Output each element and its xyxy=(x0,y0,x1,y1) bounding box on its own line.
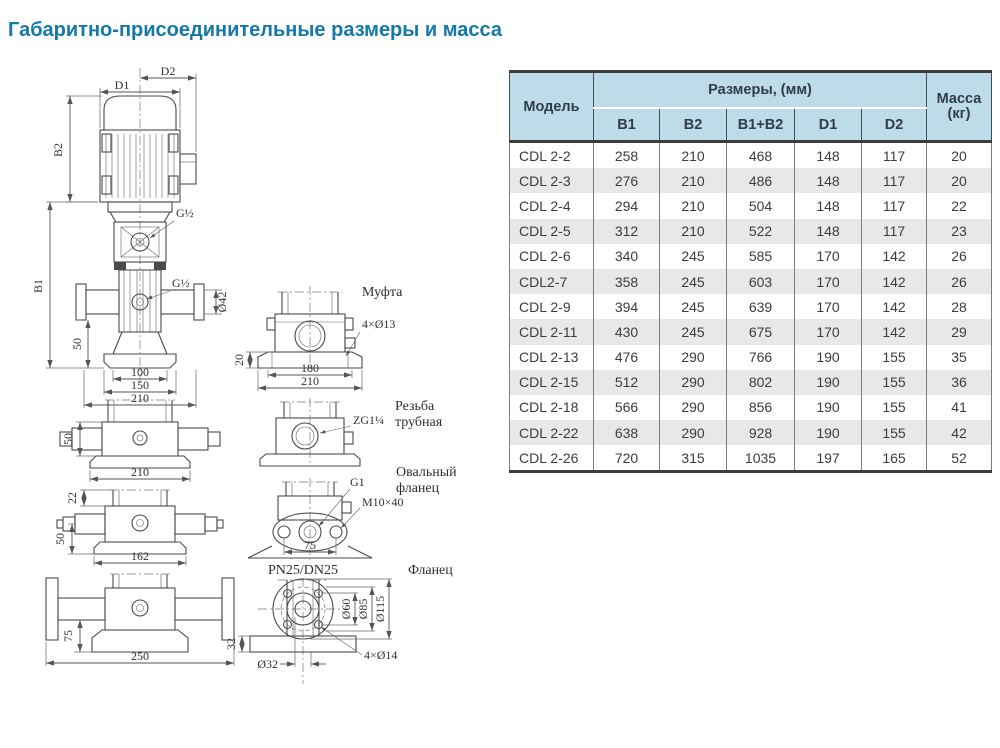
b2-cell: 210 xyxy=(660,142,727,169)
d2-cell: 165 xyxy=(862,445,927,472)
model-cell: CDL 2-3 xyxy=(510,168,594,193)
mass-cell: 23 xyxy=(927,219,992,244)
model-cell: CDL 2-22 xyxy=(510,420,594,445)
callout-zg114: ZG1¼ xyxy=(353,413,384,427)
b2-cell: 290 xyxy=(660,395,727,420)
callout-pn25-dn25: PN25/DN25 xyxy=(268,563,338,578)
dim-label-b1: B1 xyxy=(31,279,45,293)
d1-cell: 148 xyxy=(795,219,862,244)
d1-cell: 170 xyxy=(795,319,862,344)
table-row: CDL 2-327621048614811720 xyxy=(510,168,992,193)
pump-technical-drawing: D2 D1 B2 B1 G½ G½ 50 Ø42 100 150 xyxy=(10,66,500,726)
column-header-d2: D2 xyxy=(862,108,927,142)
column-header-b1: B1 xyxy=(594,108,660,142)
b2-cell: 210 xyxy=(660,219,727,244)
model-cell: CDL 2-6 xyxy=(510,244,594,269)
table-row: CDL 2-939424563917014228 xyxy=(510,294,992,319)
dim-label-50: 50 xyxy=(70,338,84,350)
callout-4xd14: 4×Ø14 xyxy=(364,648,397,662)
mass-cell: 26 xyxy=(927,244,992,269)
b1b2-cell: 468 xyxy=(727,142,795,169)
d1-cell: 170 xyxy=(795,294,862,319)
technical-drawing-area: D2 D1 B2 B1 G½ G½ 50 Ø42 100 150 xyxy=(10,66,500,731)
view-label-oval-1: Овальный xyxy=(396,465,457,480)
b1-cell: 566 xyxy=(594,395,660,420)
column-header-model: Модель xyxy=(510,72,594,142)
d2-cell: 117 xyxy=(862,142,927,169)
b2-cell: 210 xyxy=(660,168,727,193)
callout-g-half-top: G½ xyxy=(176,206,194,220)
dim-label-dia85: Ø85 xyxy=(356,599,370,620)
table-row: CDL 2-429421050414811722 xyxy=(510,193,992,218)
model-cell: CDL 2-15 xyxy=(510,370,594,395)
mass-header-line2: (кг) xyxy=(927,107,991,122)
model-cell: CDL 2-9 xyxy=(510,294,594,319)
d1-cell: 190 xyxy=(795,395,862,420)
callout-4xd13: 4×Ø13 xyxy=(362,317,395,331)
b1b2-cell: 802 xyxy=(727,370,795,395)
table-row: CDL 2-26720315103519716552 xyxy=(510,445,992,472)
table-row: CDL2-735824560317014226 xyxy=(510,269,992,294)
view-mufta: Муфта 4×Ø13 20 180 210 xyxy=(232,285,403,391)
dim-label-d1: D1 xyxy=(115,78,130,92)
table-row: CDL 2-1856629085619015541 xyxy=(510,395,992,420)
mass-cell: 26 xyxy=(927,269,992,294)
b2-cell: 245 xyxy=(660,319,727,344)
dim-label-75: 75 xyxy=(304,538,316,552)
b1b2-cell: 504 xyxy=(727,193,795,218)
d2-cell: 155 xyxy=(862,370,927,395)
b2-cell: 290 xyxy=(660,345,727,370)
dim-label-20: 20 xyxy=(232,354,246,366)
b2-cell: 210 xyxy=(660,193,727,218)
b1-cell: 276 xyxy=(594,168,660,193)
view-label-mufta: Муфта xyxy=(362,285,403,300)
b1b2-cell: 766 xyxy=(727,345,795,370)
side-view-coupling: 50 210 xyxy=(60,400,220,482)
d2-cell: 117 xyxy=(862,168,927,193)
view-label-rezba-2: трубная xyxy=(395,415,443,430)
dim-label-210: 210 xyxy=(131,465,149,479)
d2-cell: 155 xyxy=(862,420,927,445)
dim-label-50: 50 xyxy=(53,533,67,545)
mass-cell: 29 xyxy=(927,319,992,344)
dim-label-50: 50 xyxy=(61,433,75,445)
b1-cell: 638 xyxy=(594,420,660,445)
b2-cell: 315 xyxy=(660,445,727,472)
b1-cell: 512 xyxy=(594,370,660,395)
table-row: CDL 2-531221052214811723 xyxy=(510,219,992,244)
dim-label-dia42: Ø42 xyxy=(215,292,229,313)
b1-cell: 312 xyxy=(594,219,660,244)
table-row: CDL 2-634024558517014226 xyxy=(510,244,992,269)
b1b2-cell: 639 xyxy=(727,294,795,319)
table-header: Модель Размеры, (мм) Масса (кг) B1 B2 B1… xyxy=(510,72,992,142)
d1-cell: 190 xyxy=(795,345,862,370)
view-label-rezba-1: Резьба xyxy=(395,399,435,414)
callout-m10x40: M10×40 xyxy=(362,495,403,509)
d1-cell: 148 xyxy=(795,168,862,193)
column-header-b2: B2 xyxy=(660,108,727,142)
b1b2-cell: 486 xyxy=(727,168,795,193)
dim-label-dia115: Ø115 xyxy=(373,596,387,622)
b1b2-cell: 522 xyxy=(727,219,795,244)
dim-label-dia32: Ø32 xyxy=(257,657,278,671)
column-header-b1b2: B1+B2 xyxy=(727,108,795,142)
column-group-sizes: Размеры, (мм) xyxy=(594,72,927,109)
side-view-flanged: 75 250 xyxy=(46,574,234,666)
dim-label-d2: D2 xyxy=(161,66,176,78)
d2-cell: 117 xyxy=(862,193,927,218)
column-header-d1: D1 xyxy=(795,108,862,142)
d2-cell: 155 xyxy=(862,345,927,370)
page-title: Габаритно-присоединительные размеры и ма… xyxy=(8,18,502,42)
side-view-thread: 22 50 162 xyxy=(53,490,223,566)
model-cell: CDL 2-4 xyxy=(510,193,594,218)
b1b2-cell: 856 xyxy=(727,395,795,420)
d2-cell: 117 xyxy=(862,219,927,244)
b1-cell: 476 xyxy=(594,345,660,370)
mass-cell: 36 xyxy=(927,370,992,395)
dim-label-210: 210 xyxy=(131,391,149,405)
view-label-oval-2: фланец xyxy=(396,481,440,496)
callout-g-half-mid: G½ xyxy=(172,276,190,290)
d2-cell: 142 xyxy=(862,319,927,344)
spec-table-container: Модель Размеры, (мм) Масса (кг) B1 B2 B1… xyxy=(509,70,991,473)
model-cell: CDL2-7 xyxy=(510,269,594,294)
mass-header-line1: Масса xyxy=(927,92,991,107)
b1-cell: 720 xyxy=(594,445,660,472)
b1-cell: 430 xyxy=(594,319,660,344)
b2-cell: 245 xyxy=(660,269,727,294)
model-cell: CDL 2-11 xyxy=(510,319,594,344)
view-label-flange: Фланец xyxy=(408,563,453,578)
model-cell: CDL 2-2 xyxy=(510,142,594,169)
table-body: CDL 2-225821046814811720CDL 2-3276210486… xyxy=(510,142,992,472)
d1-cell: 197 xyxy=(795,445,862,472)
dim-label-100: 100 xyxy=(131,365,149,379)
dim-label-75: 75 xyxy=(61,630,75,642)
table-row: CDL 2-1347629076619015535 xyxy=(510,345,992,370)
mass-cell: 52 xyxy=(927,445,992,472)
view-rezba: ZG1¼ Резьба трубная xyxy=(260,398,443,466)
b1b2-cell: 585 xyxy=(727,244,795,269)
d2-cell: 142 xyxy=(862,269,927,294)
d1-cell: 190 xyxy=(795,420,862,445)
b1b2-cell: 675 xyxy=(727,319,795,344)
dim-label-210: 210 xyxy=(301,374,319,388)
table-row: CDL 2-2263829092819015542 xyxy=(510,420,992,445)
b1-cell: 340 xyxy=(594,244,660,269)
mass-cell: 20 xyxy=(927,168,992,193)
dim-label-b2: B2 xyxy=(51,143,65,157)
d1-cell: 190 xyxy=(795,370,862,395)
b1b2-cell: 603 xyxy=(727,269,795,294)
table-row: CDL 2-225821046814811720 xyxy=(510,142,992,169)
table-row: CDL 2-1551229080219015536 xyxy=(510,370,992,395)
model-cell: CDL 2-5 xyxy=(510,219,594,244)
b1-cell: 394 xyxy=(594,294,660,319)
mass-cell: 28 xyxy=(927,294,992,319)
view-round-flange: PN25/DN25 Фланец Ø60 Ø85 Ø115 32 Ø32 xyxy=(224,563,453,684)
dim-label-dia60: Ø60 xyxy=(339,599,353,620)
table-row: CDL 2-1143024567517014229 xyxy=(510,319,992,344)
d2-cell: 142 xyxy=(862,294,927,319)
d2-cell: 155 xyxy=(862,395,927,420)
b2-cell: 245 xyxy=(660,244,727,269)
dim-label-250: 250 xyxy=(131,649,149,663)
view-oval-flange: G1 M10×40 Овальный фланец 75 xyxy=(248,465,457,562)
b1-cell: 358 xyxy=(594,269,660,294)
d2-cell: 142 xyxy=(862,244,927,269)
b1b2-cell: 928 xyxy=(727,420,795,445)
mass-cell: 41 xyxy=(927,395,992,420)
main-pump-view: D2 D1 B2 B1 G½ G½ 50 Ø42 100 150 xyxy=(31,66,229,408)
mass-cell: 22 xyxy=(927,193,992,218)
dim-label-180: 180 xyxy=(301,361,319,375)
d1-cell: 170 xyxy=(795,269,862,294)
dimensions-table: Модель Размеры, (мм) Масса (кг) B1 B2 B1… xyxy=(509,70,992,473)
b1-cell: 294 xyxy=(594,193,660,218)
d1-cell: 148 xyxy=(795,142,862,169)
dim-label-162: 162 xyxy=(131,549,149,563)
d1-cell: 148 xyxy=(795,193,862,218)
mass-cell: 20 xyxy=(927,142,992,169)
mass-cell: 42 xyxy=(927,420,992,445)
b2-cell: 290 xyxy=(660,420,727,445)
b1-cell: 258 xyxy=(594,142,660,169)
callout-g1: G1 xyxy=(350,475,365,489)
dim-label-150: 150 xyxy=(131,378,149,392)
model-cell: CDL 2-13 xyxy=(510,345,594,370)
column-header-mass: Масса (кг) xyxy=(927,72,992,142)
model-cell: CDL 2-18 xyxy=(510,395,594,420)
model-cell: CDL 2-26 xyxy=(510,445,594,472)
b1b2-cell: 1035 xyxy=(727,445,795,472)
dim-label-22: 22 xyxy=(65,492,79,504)
b2-cell: 245 xyxy=(660,294,727,319)
dim-label-32: 32 xyxy=(224,638,238,650)
b2-cell: 290 xyxy=(660,370,727,395)
d1-cell: 170 xyxy=(795,244,862,269)
mass-cell: 35 xyxy=(927,345,992,370)
